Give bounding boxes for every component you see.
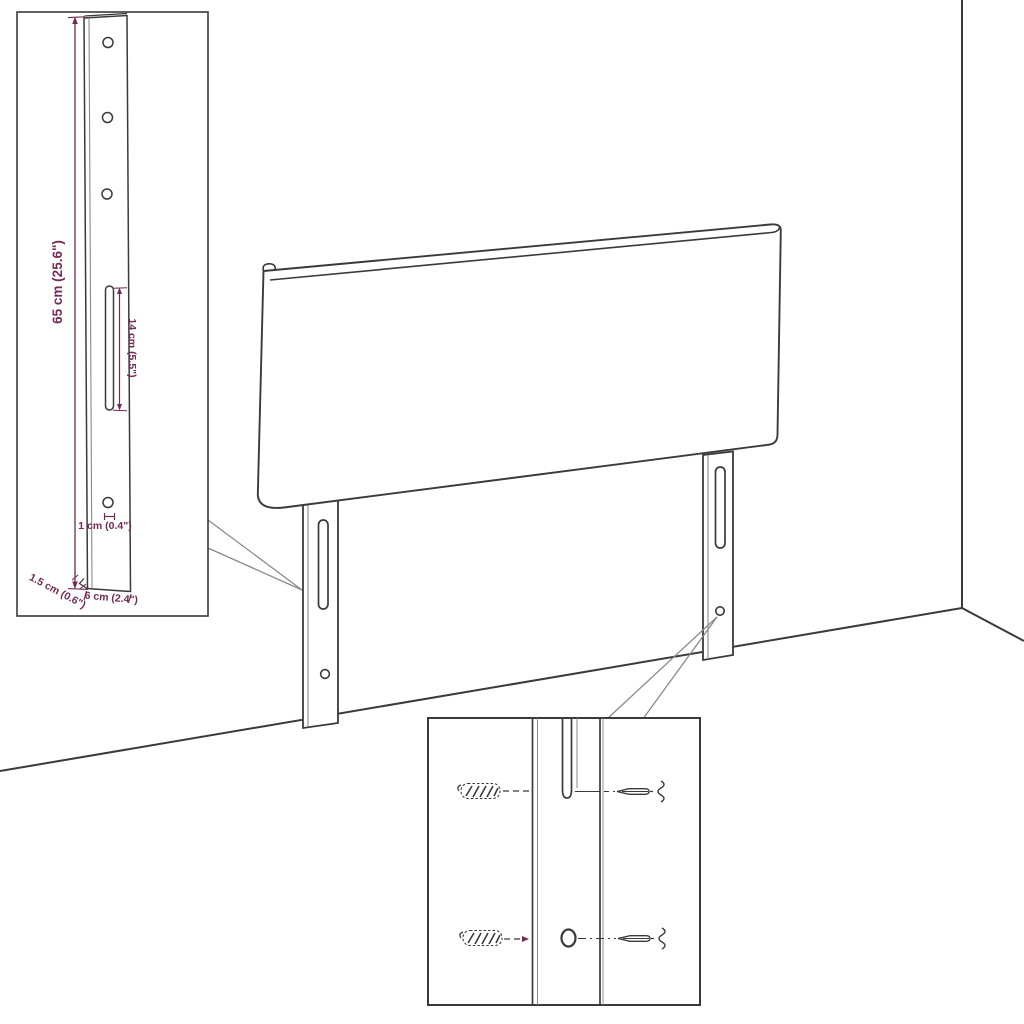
assembly-diagram-canvas: 65 cm (25.6") 14 cm (5.5") 1 cm (0.4") 1…	[0, 0, 1024, 1024]
mounting-hardware-inset	[428, 718, 700, 1005]
callout-line	[644, 617, 717, 718]
slot-length-label: 14 cm (5.5")	[126, 318, 138, 377]
dimension-tick	[113, 288, 127, 289]
floor-wall-junction-right	[962, 608, 1024, 641]
assembly-diagram: 65 cm (25.6") 14 cm (5.5") 1 cm (0.4") 1…	[0, 0, 1024, 1024]
right-mounting-leg	[703, 452, 733, 661]
callout-lines-left	[208, 520, 302, 590]
leg-height-label: 65 cm (25.6")	[50, 240, 65, 324]
inset-leg	[80, 14, 131, 592]
leg-dimension-inset: 65 cm (25.6") 14 cm (5.5") 1 cm (0.4") 1…	[17, 12, 208, 616]
inset-border	[428, 718, 700, 1005]
callout-lines-right	[607, 617, 717, 719]
hole-diameter-label: 1 cm (0.4")	[78, 520, 131, 532]
callout-line	[607, 617, 717, 719]
dimension-tick	[113, 410, 127, 411]
